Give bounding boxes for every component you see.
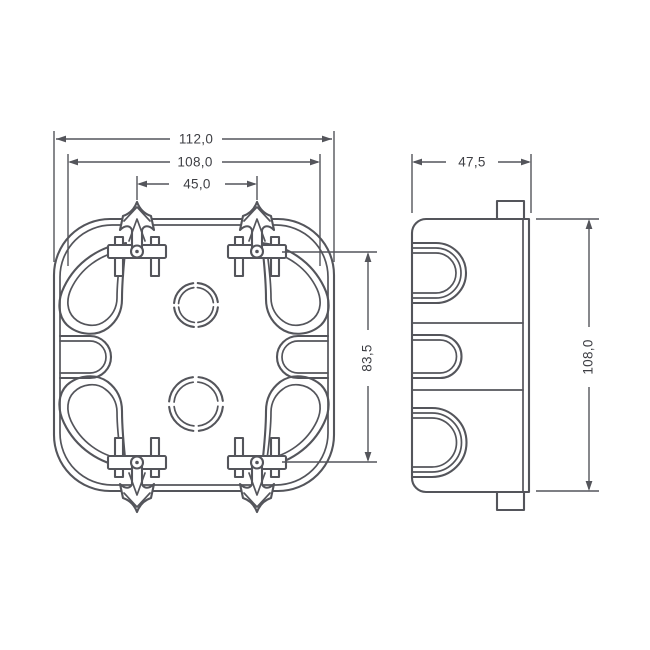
side-knockout-top-ring-2 <box>412 248 461 298</box>
front-view: 112,0 108,0 45,0 83,5 <box>54 131 377 512</box>
side-divider-lines <box>412 323 523 390</box>
side-knockout-top <box>412 243 466 303</box>
dimension-label-clip-spacing: 45,0 <box>183 177 210 192</box>
dimension-label-height: 108,0 <box>581 339 596 374</box>
corner-clip-top-left <box>108 202 166 276</box>
corner-clip-bottom-right <box>228 438 286 512</box>
stadium-left <box>60 336 111 378</box>
side-view: 47,5 108,0 <box>412 154 599 510</box>
knockout-circle-large-inner <box>174 382 218 426</box>
dimension-height: 108,0 <box>536 219 599 491</box>
stadium-right <box>277 336 328 378</box>
side-knockout-middle-ring-1 <box>412 335 462 378</box>
side-knockout-middle-ring-2 <box>412 340 457 373</box>
side-knockout-bottom-ring-3 <box>412 418 456 467</box>
side-knockout-top-ring-3 <box>412 253 456 293</box>
side-tab-top <box>497 201 524 219</box>
knockout-circle-small-outer <box>174 283 218 327</box>
dimension-outer-width-lines <box>54 131 334 262</box>
side-knockout-bottom-ring-2 <box>412 413 462 472</box>
technical-drawing: 112,0 108,0 45,0 83,5 <box>0 0 650 650</box>
corner-clip-bottom-left <box>108 438 166 512</box>
dimension-label-screw-spacing: 83,5 <box>360 344 375 371</box>
corner-clip-top-right <box>228 202 286 276</box>
dimension-label-outer-width: 112,0 <box>179 132 213 147</box>
center-knockout-large <box>169 377 223 431</box>
dimension-outer-width: 112,0 <box>54 131 334 262</box>
side-knockout-middle <box>412 335 462 378</box>
front-outline-rim <box>60 225 328 485</box>
side-tab-bottom <box>497 492 524 510</box>
technical-drawing-canvas: 112,0 108,0 45,0 83,5 <box>0 0 650 650</box>
side-outline <box>412 219 529 492</box>
knockout-circle-small-inner <box>179 288 214 323</box>
side-knockout-bottom <box>412 408 467 477</box>
knockout-circle-large-outer <box>169 377 223 431</box>
dimension-depth: 47,5 <box>412 154 531 213</box>
dimension-label-flange-width: 108,0 <box>177 155 212 170</box>
side-knockout-top-ring-1 <box>412 243 466 303</box>
dimension-screw-spacing: 83,5 <box>282 252 377 462</box>
dimension-clip-spacing: 45,0 <box>137 176 257 200</box>
dimension-label-depth: 47,5 <box>458 155 485 170</box>
center-knockout-small <box>174 283 218 327</box>
